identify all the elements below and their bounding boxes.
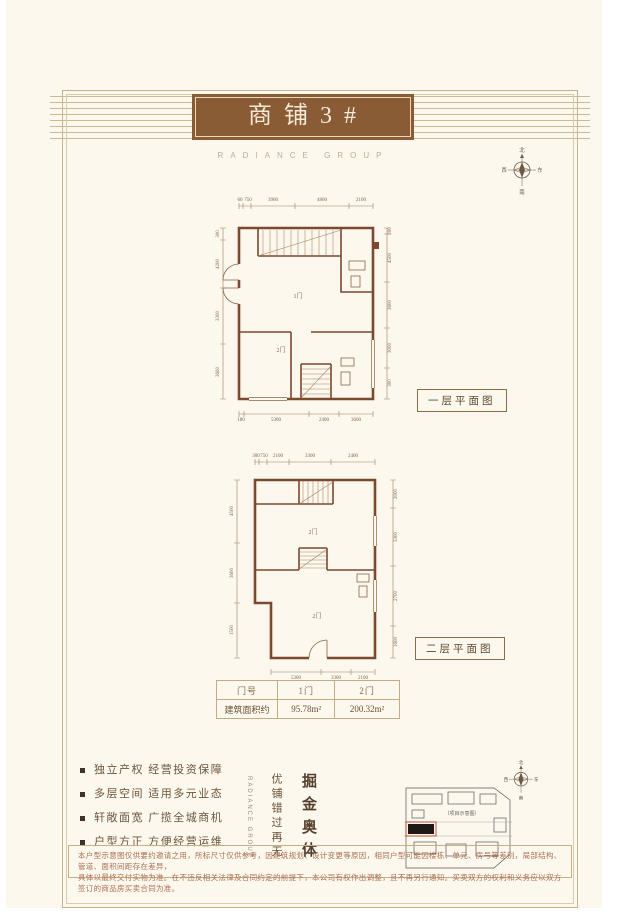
room-label: 2门 [276, 346, 285, 354]
table-header-row: 门号 1门 2门 [217, 681, 400, 700]
dim-label: 4800 [317, 198, 328, 203]
list-item: 多层空间 适用多元业态 [80, 782, 223, 806]
plan1-dim-bottom: 180 5300 2400 3600 [237, 411, 373, 422]
plan2-dim-left: 4500 3600 1500 [230, 480, 240, 658]
plan1-doors [223, 264, 239, 304]
dim-label: 3000 [388, 343, 393, 354]
dim-label: 4500 [230, 506, 235, 517]
dim-label: 3600 [230, 568, 235, 579]
square-bullet-icon [80, 768, 85, 773]
brochure-page: 商铺3# RADIANCE GROUP 北 南 西 东 60 750 3900 … [0, 0, 640, 920]
dim-label: 300 [252, 454, 260, 459]
disclaimer-line-1: 本户型示意图仅供要约邀请之用，所标尺寸仅供参考，因建筑规划、设计变更等原因，相同… [78, 850, 562, 872]
plan1-dim-left: 300 4200 3300 3600 [216, 228, 226, 399]
compass-icon: 北 南 西 东 [502, 146, 542, 196]
plan2-caption: 二层平面图 [415, 637, 505, 660]
room-label: 2门 [312, 612, 321, 620]
plan2-stair-hatch [299, 481, 333, 569]
plan2-dim-top: 300 750 2100 3300 2400 [252, 454, 375, 465]
col-header-door-no: 门号 [217, 681, 278, 700]
dim-label: 4500 [388, 253, 393, 264]
square-bullet-icon [80, 816, 85, 821]
dim-label: 2400 [319, 418, 330, 422]
row-label-area: 建筑面积约 [217, 700, 278, 719]
plan1-windows [249, 340, 374, 400]
plan1-dim-right: 200 4500 3600 3000 300 [384, 227, 393, 399]
feature-text: 独立产权 经营投资保障 [94, 758, 223, 782]
dim-label: 3900 [268, 198, 279, 203]
area-door2: 200.32m² [335, 700, 400, 719]
dim-label: 300 [388, 379, 393, 387]
compass-east-label: 东 [537, 166, 542, 174]
table-row: 建筑面积约 95.78m² 200.32m² [217, 700, 400, 719]
room-label: 2门 [308, 528, 317, 536]
plan1-caption: 一层平面图 [417, 389, 507, 412]
col-header-door1: 1门 [278, 681, 335, 700]
dim-label: 1600 [394, 637, 399, 648]
plan2-dim-right: 2000 3300 2700 1600 [390, 480, 399, 658]
plan2-walls [255, 480, 375, 658]
dim-label: 3300 [394, 532, 399, 543]
plan1-walls [239, 228, 379, 399]
floor-plan-2: 300 750 2100 3300 2400 4500 3600 1500 20… [213, 448, 413, 683]
room-label: 1门 [293, 292, 302, 300]
dim-label: 3600 [216, 367, 221, 378]
disclaimer-line-2: 具体以最终交付实物为准。在不违反相关法律及合同约定的前提下，本公司有权作出调整，… [78, 872, 562, 894]
page-edge [0, 0, 6, 920]
compass-east-label: 东 [534, 776, 538, 783]
dim-label: 2700 [394, 591, 399, 602]
compass-south-label: 南 [519, 188, 525, 196]
dim-label: 3300 [305, 454, 316, 459]
dim-label: 3600 [388, 300, 393, 311]
area-door1: 95.78m² [278, 700, 335, 719]
dim-label: 2100 [356, 198, 367, 203]
title-banner: 商铺3# [192, 94, 414, 140]
brand-subtitle: RADIANCE GROUP [192, 151, 414, 160]
dim-label: 200 [388, 227, 393, 235]
dim-label: 2100 [273, 454, 284, 459]
siteplan-label: （项目示意图） [444, 810, 479, 817]
dim-label: 2000 [394, 489, 399, 500]
list-item: 轩敞面宽 广揽全城商机 [80, 806, 223, 830]
compass-south-label: 南 [519, 795, 524, 802]
floor-plan-1: 60 750 3900 4800 2100 300 4200 3300 3600… [203, 192, 403, 422]
page-edge [0, 908, 640, 920]
dim-label: 2400 [348, 454, 359, 459]
square-bullet-icon [80, 792, 85, 797]
dim-label: 300 [216, 230, 221, 238]
feature-list: 独立产权 经营投资保障 多层空间 适用多元业态 轩敞面宽 广揽全城商机 户型方正… [80, 758, 223, 854]
plan1-stair-hatch [258, 230, 341, 398]
plan1-fixtures [341, 261, 365, 385]
plan2-fixtures [357, 574, 369, 597]
page-title: 商铺3# [192, 94, 414, 140]
dim-label: 5300 [271, 418, 282, 422]
list-item: 独立产权 经营投资保障 [80, 758, 223, 782]
col-header-door2: 2门 [335, 681, 400, 700]
dim-label: 60 [238, 198, 244, 203]
compass-icon: 北 南 西 东 [504, 758, 538, 802]
page-edge [602, 0, 640, 920]
compass-west-label: 西 [504, 777, 508, 783]
feature-text: 轩敞面宽 广揽全城商机 [94, 806, 223, 830]
dim-label: 3300 [216, 311, 221, 322]
compass-north-label: 北 [519, 146, 525, 154]
compass-north-label: 北 [519, 759, 524, 766]
compass-west-label: 西 [502, 167, 507, 174]
area-table: 门号 1门 2门 建筑面积约 95.78m² 200.32m² [216, 680, 400, 719]
dim-label: 1500 [230, 625, 235, 636]
dim-label: 3600 [351, 418, 362, 422]
feature-text: 多层空间 适用多元业态 [94, 782, 223, 806]
square-bullet-icon [80, 840, 85, 845]
highlighted-building [408, 824, 434, 834]
plan2-doors [309, 640, 327, 658]
dim-label: 180 [237, 418, 245, 422]
dim-label: 750 [244, 198, 252, 203]
dim-label: 4200 [216, 259, 221, 270]
dim-label: 750 [260, 454, 268, 459]
disclaimer-box: 本户型示意图仅供要约邀请之用，所标尺寸仅供参考，因建筑规划、设计变更等原因，相同… [68, 845, 572, 878]
plan1-dim-top: 60 750 3900 4800 2100 [238, 198, 374, 209]
